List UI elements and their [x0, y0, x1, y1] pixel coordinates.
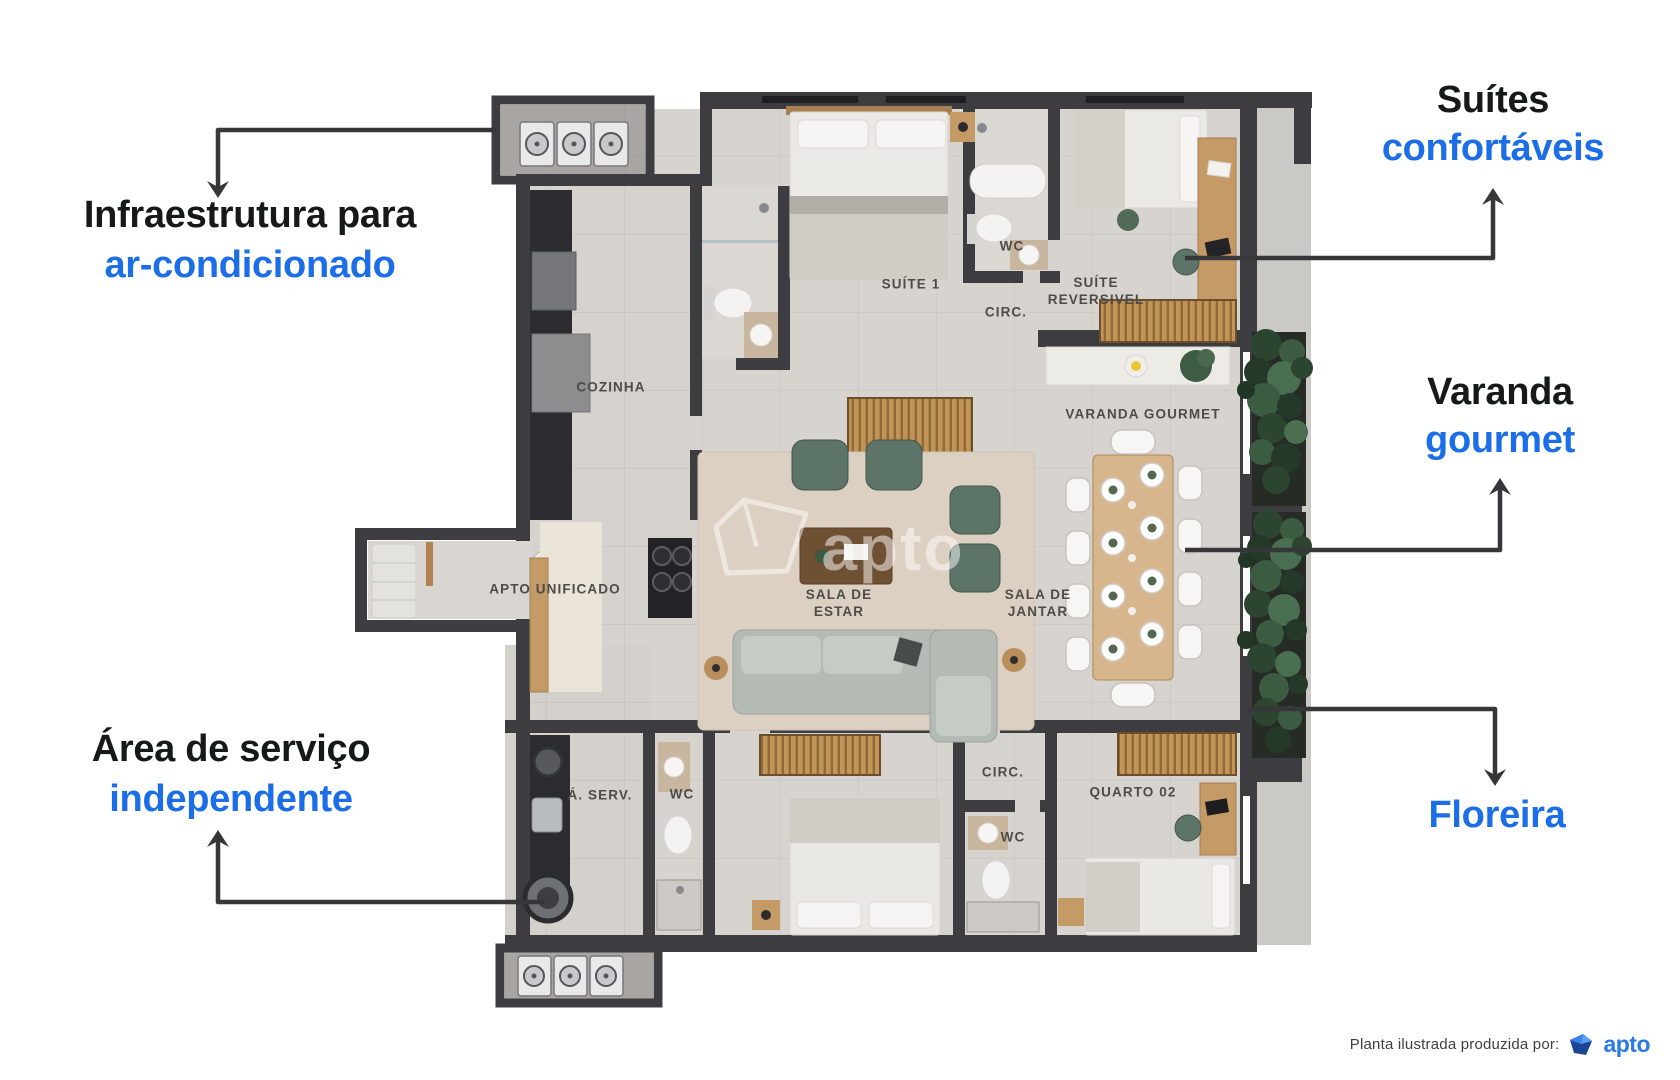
watermark-text: apto — [821, 512, 964, 584]
callout-suites: Suítes confortáveis — [1293, 76, 1680, 172]
footer-brand-text: apto — [1603, 1031, 1650, 1058]
apto-logo-icon — [1568, 1033, 1594, 1057]
room-label-wc-servico: WC — [670, 787, 695, 804]
room-label-area-servico: Á. SERV. — [567, 788, 632, 805]
footer-credit-text: Planta ilustrada produzida por: — [1350, 1036, 1560, 1053]
service-area — [525, 735, 571, 921]
room-label-varanda-gourmet: VARANDA GOURMET — [1065, 407, 1220, 424]
room-label-quarto02: QUARTO 02 — [1090, 785, 1177, 802]
callout-varanda: Varanda gourmet — [1300, 368, 1680, 464]
room-label-circ-top: CIRC. — [985, 305, 1027, 322]
room-label-wc-bottom: WC — [1001, 830, 1026, 847]
callout-ac-line1: Infraestrutura para — [30, 190, 470, 240]
footer-credit: Planta ilustrada produzida por: apto — [1350, 1031, 1650, 1058]
room-label-sala-jantar: SALA DE JANTAR — [1005, 587, 1071, 621]
callout-servico: Área de serviço independente — [31, 724, 431, 824]
room-label-suite-reversivel: SUÍTE REVERSIVEL — [1048, 275, 1145, 309]
callout-varanda-line1: Varanda — [1300, 368, 1680, 416]
callout-floreira-line1: Floreira — [1297, 790, 1680, 840]
room-label-apto-unificado: APTO UNIFICADO — [489, 582, 620, 599]
callout-floreira: Floreira — [1297, 790, 1680, 840]
room-label-cozinha: COZINHA — [576, 380, 645, 397]
callout-ac-line2: ar-condicionado — [30, 240, 470, 290]
callout-servico-line2: independente — [31, 774, 431, 824]
callout-ac-infra: Infraestrutura para ar-condicionado — [30, 190, 470, 290]
callout-servico-line1: Área de serviço — [31, 724, 431, 774]
bathroom-suite1 — [702, 186, 778, 358]
room-label-circ-bottom: CIRC. — [982, 765, 1024, 782]
callout-varanda-line2: gourmet — [1300, 416, 1680, 464]
room-label-suite1: SUÍTE 1 — [882, 277, 941, 294]
floor-plan-page: apto COZINHA SUÍTE 1 WC SUÍTE REVERSIVEL… — [0, 0, 1680, 1080]
callout-suites-line2: confortáveis — [1293, 124, 1680, 172]
apto-unificado-niche — [368, 541, 516, 619]
callout-suites-line1: Suítes — [1293, 76, 1680, 124]
room-label-sala-estar: SALA DE ESTAR — [806, 587, 872, 621]
room-label-wc-suite: WC — [1000, 239, 1025, 256]
